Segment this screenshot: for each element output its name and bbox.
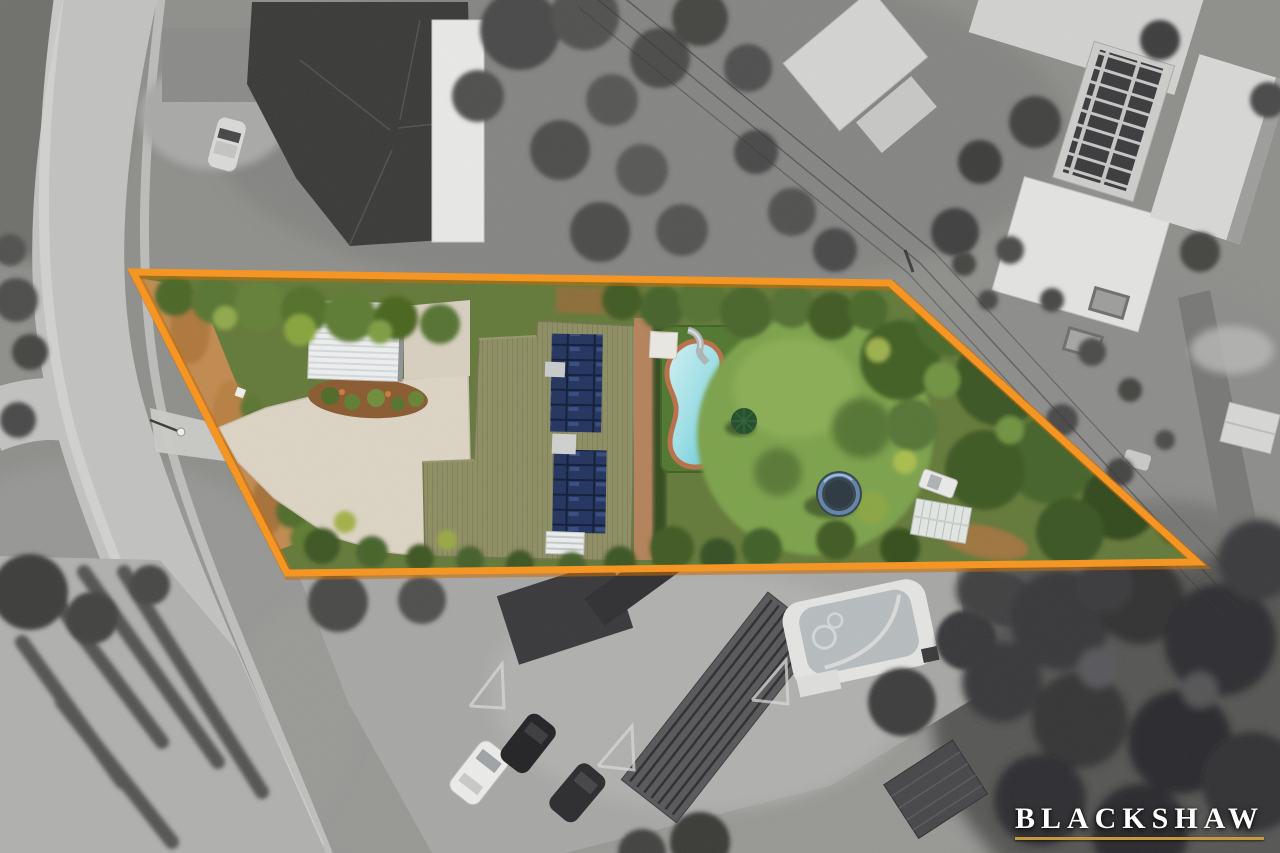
aerial-photo: BLACKSHAW	[0, 0, 1280, 853]
photo-grain	[0, 0, 1280, 853]
aerial-photo-canvas	[0, 0, 1280, 853]
